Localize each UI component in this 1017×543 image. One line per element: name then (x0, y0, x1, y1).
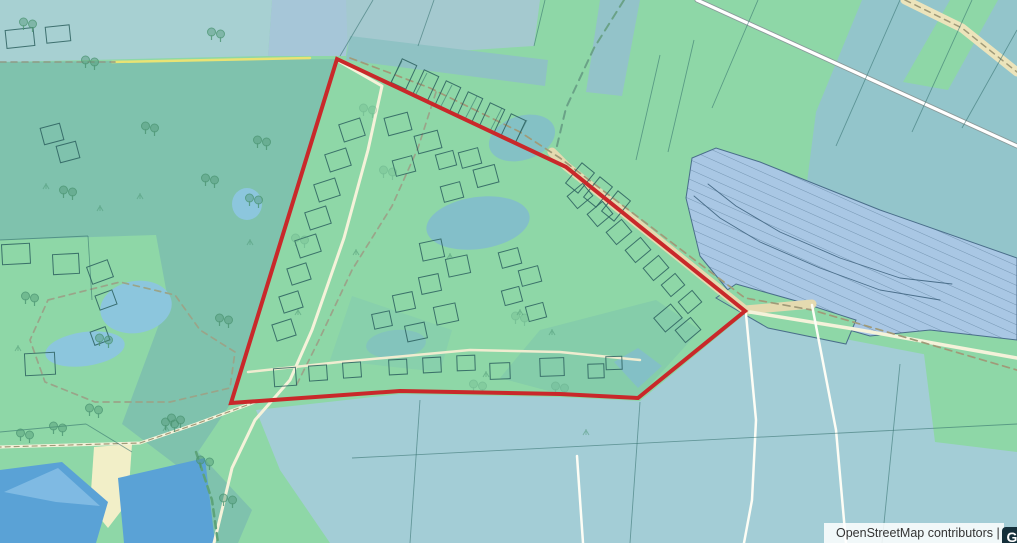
map-canvas[interactable] (0, 0, 1017, 543)
map-viewport[interactable]: OpenStreetMap contributors | G (0, 0, 1017, 543)
brand-logo[interactable]: G (1002, 527, 1017, 543)
attribution-link[interactable]: OpenStreetMap contributors | (836, 526, 1000, 540)
attribution-bar: OpenStreetMap contributors | (824, 523, 1004, 543)
area-field-top-left (0, 0, 272, 62)
area-field-top-blue (268, 0, 352, 56)
